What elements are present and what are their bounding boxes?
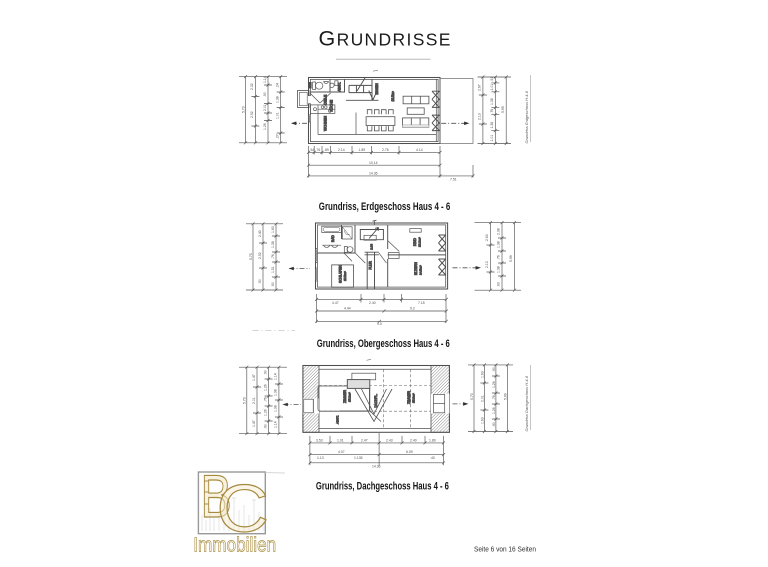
svg-text:2.01: 2.01 [480,395,484,402]
svg-text:FLUR: FLUR [369,260,373,269]
svg-text:1.38: 1.38 [271,241,275,248]
svg-text:.76: .76 [271,254,275,259]
svg-text:.89: .89 [324,148,329,152]
svg-text:12.1m²: 12.1m² [418,237,422,247]
svg-text:2.01: 2.01 [263,104,267,111]
svg-text:1.01: 1.01 [337,439,344,443]
svg-text:ZIMMER: ZIMMER [407,390,411,404]
svg-text:10.14: 10.14 [369,161,378,165]
svg-text:2.76: 2.76 [382,148,389,152]
svg-text:9.2: 9.2 [410,307,415,311]
svg-text:3.53: 3.53 [316,439,323,443]
svg-text:2.52: 2.52 [250,111,254,118]
svg-text:1.14: 1.14 [274,373,278,380]
svg-text:1.01: 1.01 [490,135,494,142]
svg-text:ZIMMER: ZIMMER [343,389,347,403]
svg-text:1.14: 1.14 [263,76,267,83]
svg-text:2.01: 2.01 [252,397,256,404]
svg-text:.63: .63 [497,282,501,287]
svg-text:2.14: 2.14 [338,148,345,152]
svg-text:Grundriss, Obergeschoss Haus 4: Grundriss, Obergeschoss Haus 4 - 6 [317,338,450,350]
svg-text:1.14: 1.14 [274,421,278,428]
svg-text:1.63: 1.63 [271,226,275,233]
svg-text:5.99: 5.99 [509,255,513,262]
svg-text:GRUNDRISSE: GRUNDRISSE [319,26,452,50]
svg-text:1.135: 1.135 [354,456,363,460]
svg-text:KIND: KIND [413,238,417,246]
svg-text:5.73: 5.73 [249,253,253,260]
svg-text:15.5m²: 15.5m² [391,90,395,101]
svg-text:2.40: 2.40 [369,301,376,305]
svg-text:KÜCHE: KÜCHE [329,99,333,111]
svg-text:2.43: 2.43 [386,439,393,443]
svg-text:.54: .54 [310,148,315,152]
svg-text:4.14: 4.14 [416,148,423,152]
svg-text:7.51: 7.51 [450,178,457,182]
svg-text:Immobilien: Immobilien [193,535,276,557]
svg-text:15.1m²: 15.1m² [348,392,352,402]
svg-text:2.52: 2.52 [258,252,262,259]
svg-text:1.26: 1.26 [263,409,267,416]
svg-text:14.36: 14.36 [372,465,381,469]
svg-text:1.38: 1.38 [497,241,501,248]
svg-text:.24: .24 [276,83,280,88]
svg-text:.90: .90 [258,279,262,284]
svg-text:2.38: 2.38 [369,244,373,250]
svg-text:14.36: 14.36 [369,172,378,176]
svg-text:14.5m²: 14.5m² [419,265,423,275]
svg-text:ELTERN: ELTERN [414,262,418,275]
svg-text:2.63: 2.63 [485,234,489,241]
svg-text:2.43: 2.43 [258,230,262,237]
svg-text:DACHFL.: DACHFL. [374,394,378,408]
svg-text:.76: .76 [492,395,496,400]
svg-text:1.13: 1.13 [317,456,324,460]
svg-text:1.26: 1.26 [492,381,496,388]
svg-text:1.38: 1.38 [274,405,278,412]
svg-text:1.38: 1.38 [276,96,280,103]
svg-text:.76: .76 [497,255,501,260]
svg-text:1.26: 1.26 [263,123,267,130]
svg-text:ABST.: ABST. [338,82,342,91]
svg-text:1.47: 1.47 [252,374,256,381]
svg-text:1.63: 1.63 [480,417,484,424]
svg-text:.90: .90 [271,282,275,287]
svg-text:1.47: 1.47 [252,420,256,427]
svg-text:15.5m²: 15.5m² [343,271,347,281]
svg-text:WOHNEN: WOHNEN [324,115,328,131]
svg-text:5.73: 5.73 [470,393,474,400]
svg-text:1.89: 1.89 [429,439,436,443]
svg-text:6.09: 6.09 [406,450,413,454]
svg-text:1.89: 1.89 [359,148,366,152]
svg-text:.90: .90 [492,367,496,372]
svg-text:.90: .90 [263,370,267,375]
svg-text:15.0m²: 15.0m² [412,393,416,403]
svg-text:5.73: 5.73 [241,106,245,113]
svg-text:2.47: 2.47 [361,439,368,443]
svg-text:.76: .76 [490,109,494,114]
svg-text:1.38: 1.38 [490,98,494,105]
svg-text:DIELE: DIELE [323,94,327,105]
svg-text:2.32: 2.32 [250,83,254,90]
svg-text:1.01: 1.01 [276,112,280,119]
svg-text:ESSEN: ESSEN [375,83,379,95]
svg-text:2.38: 2.38 [497,228,501,235]
svg-text:7.15: 7.15 [418,301,425,305]
svg-text:2.13: 2.13 [485,261,489,268]
svg-text:2.40: 2.40 [410,439,417,443]
svg-text:2.67: 2.67 [478,84,482,91]
svg-text:9.0: 9.0 [377,322,382,326]
svg-text:Grundriss Erdgeschoss H.4-6: Grundriss Erdgeschoss H.4-6 [524,90,529,143]
svg-text:1.38: 1.38 [274,389,278,396]
svg-text:5.99: 5.99 [503,393,507,400]
svg-text:.76: .76 [263,397,267,402]
svg-text:5.99: 5.99 [501,106,505,113]
svg-text:Grundriss, Dachgeschoss Haus 4: Grundriss, Dachgeschoss Haus 4 - 6 [316,480,449,492]
svg-text:.27: .27 [276,134,280,139]
svg-text:2.13: 2.13 [478,113,482,120]
svg-text:ABST.: ABST. [336,415,340,424]
svg-text:4.07: 4.07 [338,450,345,454]
svg-text:4.47: 4.47 [332,301,339,305]
svg-text:.90: .90 [492,422,496,427]
svg-text:.90: .90 [263,424,267,429]
svg-text:1.01: 1.01 [490,84,494,91]
svg-text:.90: .90 [263,92,267,97]
svg-text:.76: .76 [316,148,321,152]
svg-text:1.26: 1.26 [492,407,496,414]
svg-text:1.38: 1.38 [497,266,501,273]
svg-text:5.73: 5.73 [243,397,247,404]
svg-text:Grundriss, Erdgeschoss Haus 4: Grundriss, Erdgeschoss Haus 4 - 6 [319,201,451,213]
svg-text:Seite 6 von 16 Seiten: Seite 6 von 16 Seiten [474,547,536,554]
svg-text:1.51: 1.51 [271,266,275,273]
svg-text:1.38: 1.38 [490,122,494,129]
svg-text:BAD: BAD [331,235,335,242]
svg-text:Grundriss Dachgeschoss H.4-6: Grundriss Dachgeschoss H.4-6 [524,375,529,431]
svg-text:1.63: 1.63 [480,371,484,378]
svg-text:.51: .51 [490,77,494,82]
svg-text:.40: .40 [430,456,435,460]
svg-text:1.26: 1.26 [263,384,267,391]
svg-text:SCHLAFEN: SCHLAFEN [339,265,343,283]
svg-text:4.44: 4.44 [344,307,351,311]
